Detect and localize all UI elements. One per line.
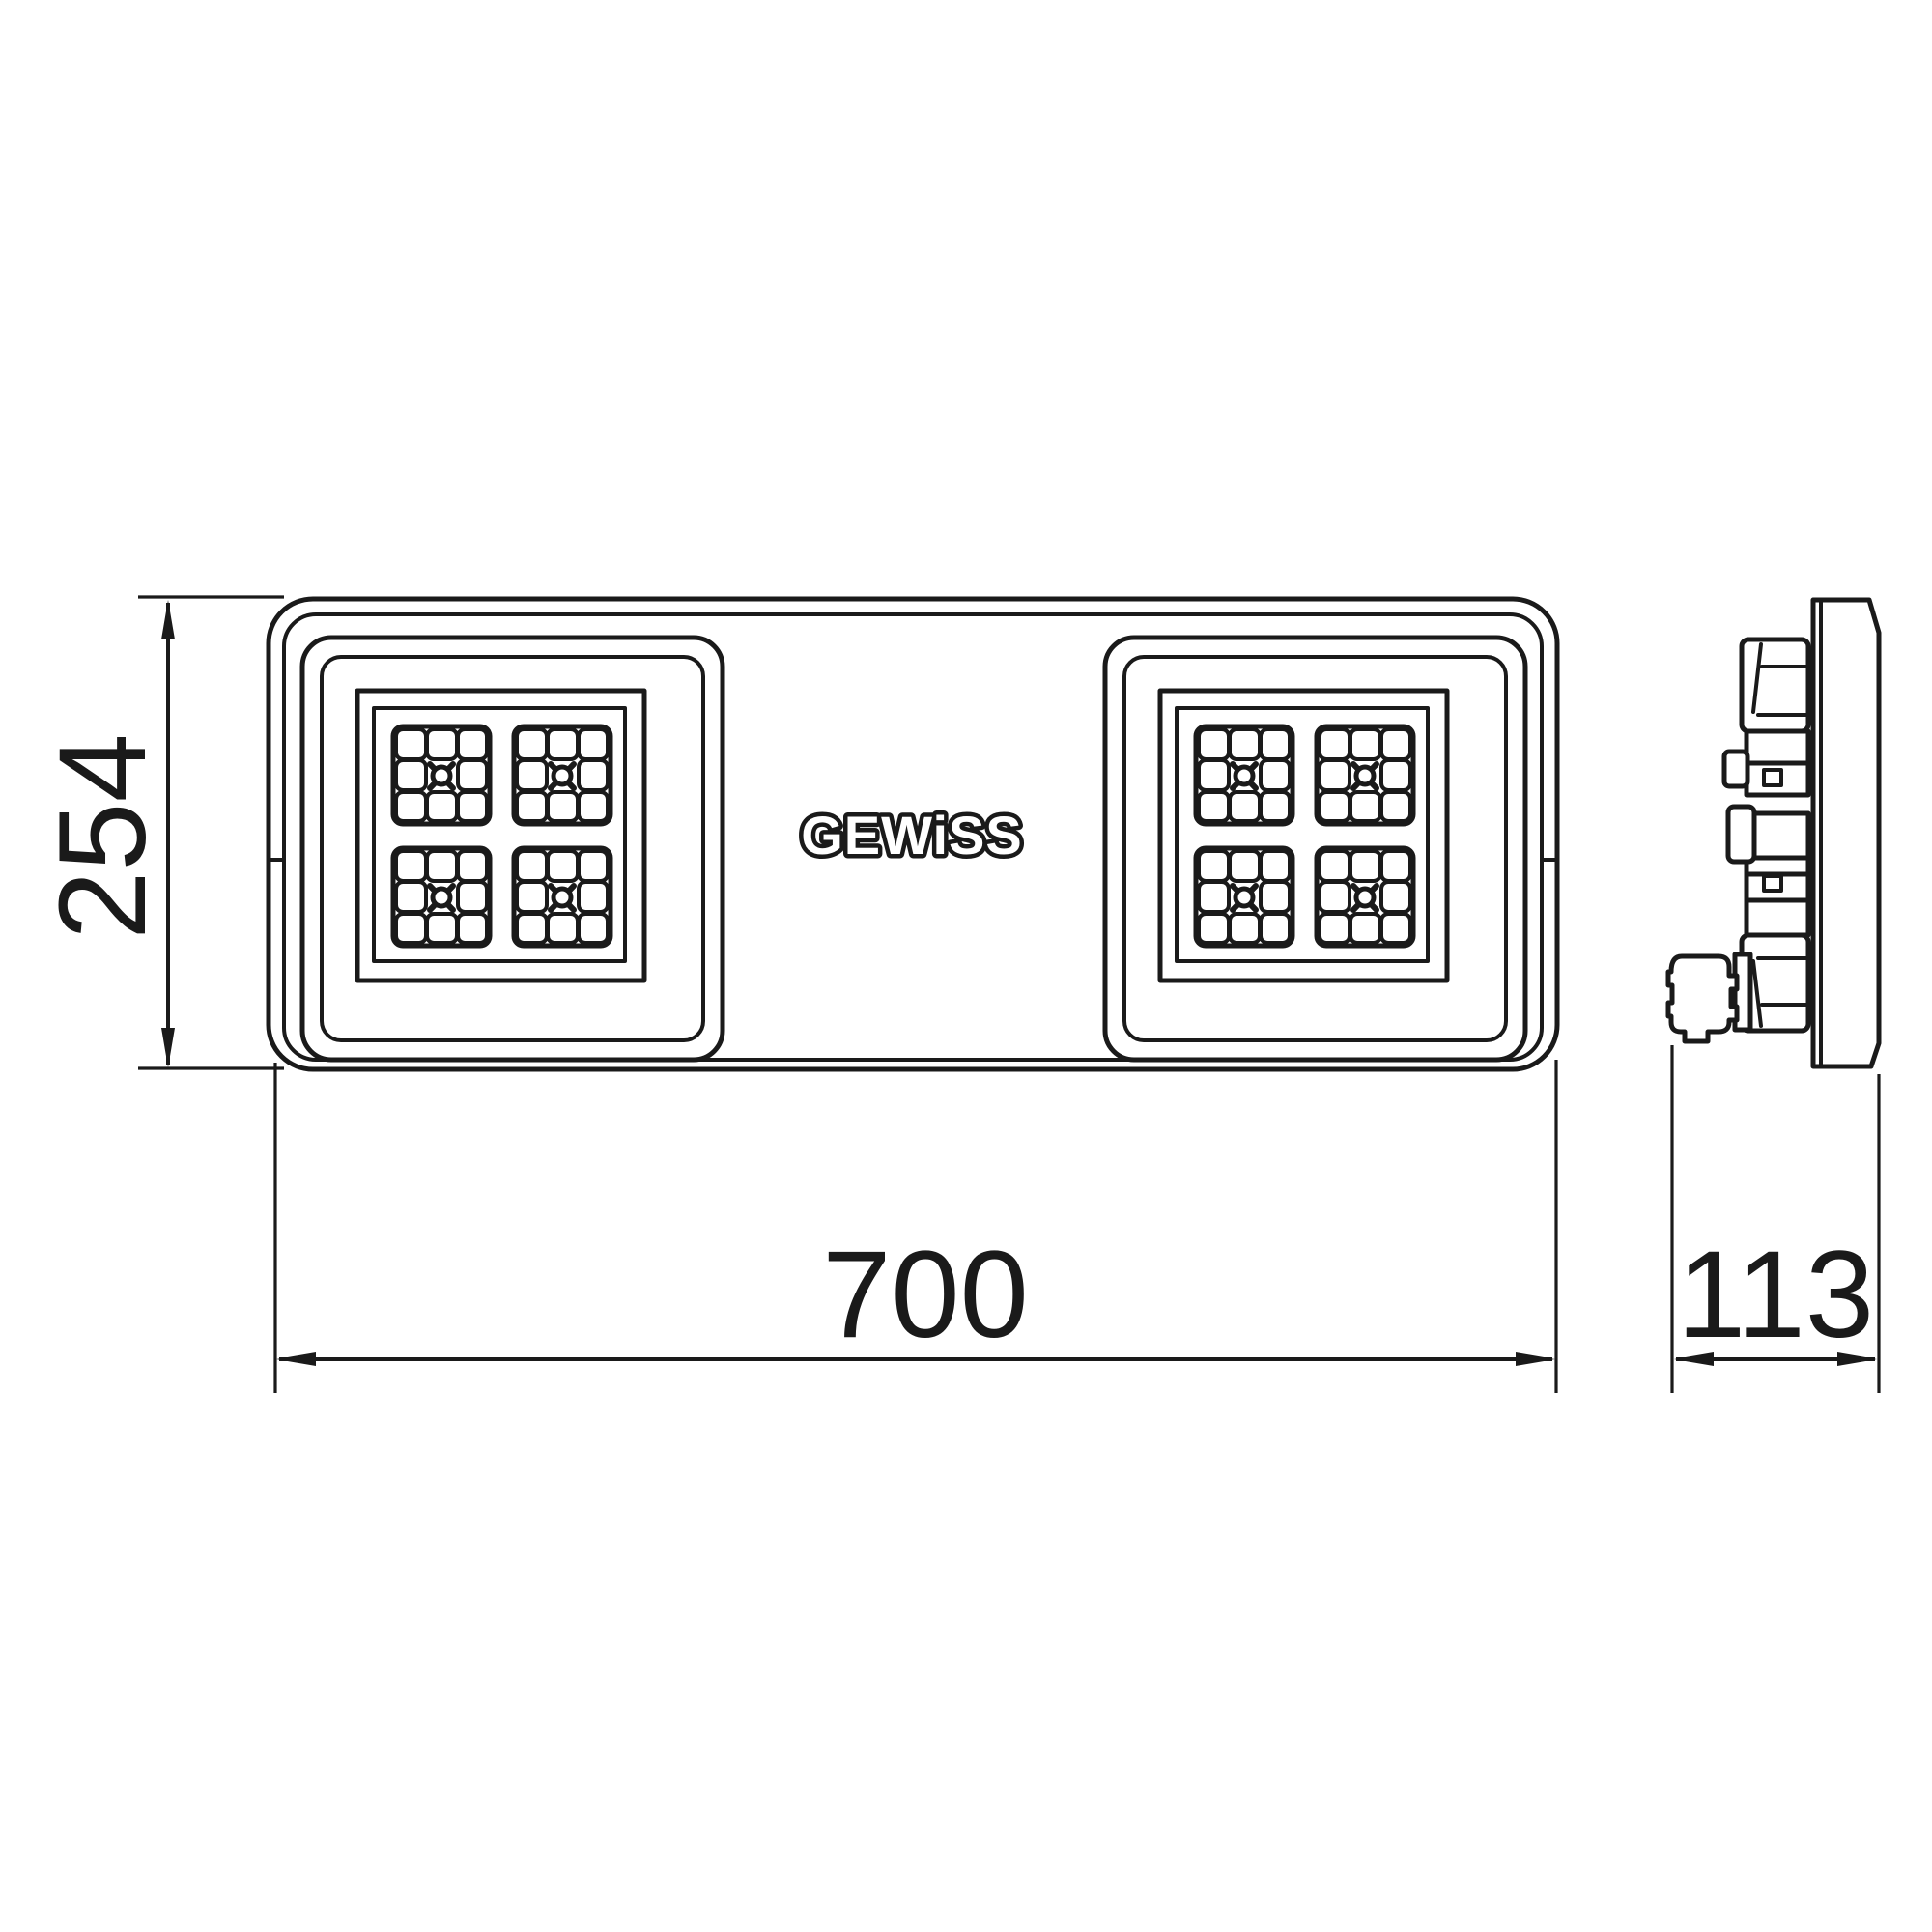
technical-drawing: GEWiSS 25 <box>0 0 1932 1932</box>
cable-gland <box>1668 956 1737 1041</box>
dim-width-label: 700 <box>822 1226 1029 1364</box>
front-view: GEWiSS <box>269 599 1557 1069</box>
dim-depth: 113 <box>1672 1045 1879 1393</box>
fin-slat <box>1747 874 1808 900</box>
gewiss-logo: GEWiSS <box>801 805 1023 866</box>
dim-height: 254 <box>34 597 284 1068</box>
fin-block-top <box>1742 639 1808 731</box>
side-front-slab <box>1813 600 1879 1066</box>
led-module-left <box>302 638 723 1060</box>
fin-slat <box>1747 858 1808 874</box>
dim-depth-label: 113 <box>1677 1226 1874 1364</box>
arrowhead-right-icon <box>1516 1352 1555 1366</box>
dim-width: 700 <box>275 1060 1556 1393</box>
mounting-tab-large <box>1728 807 1754 862</box>
fin-slat-wide <box>1750 813 1808 858</box>
fin-block-bottom-detail <box>1753 958 1808 1026</box>
led-module-right <box>1105 638 1525 1060</box>
fin-block-top-detail <box>1753 644 1808 715</box>
fin-slat <box>1747 900 1808 935</box>
dim-height-label: 254 <box>34 733 172 940</box>
side-view <box>1668 600 1879 1066</box>
fin-notch <box>1764 770 1781 785</box>
arrowhead-up-icon <box>161 600 175 639</box>
mounting-tab-small <box>1724 752 1747 786</box>
fin-slat <box>1747 763 1808 795</box>
arrowhead-left-icon <box>276 1352 316 1366</box>
arrowhead-down-icon <box>161 1028 175 1067</box>
fin-notch <box>1764 876 1781 891</box>
fin-slat <box>1747 731 1808 763</box>
